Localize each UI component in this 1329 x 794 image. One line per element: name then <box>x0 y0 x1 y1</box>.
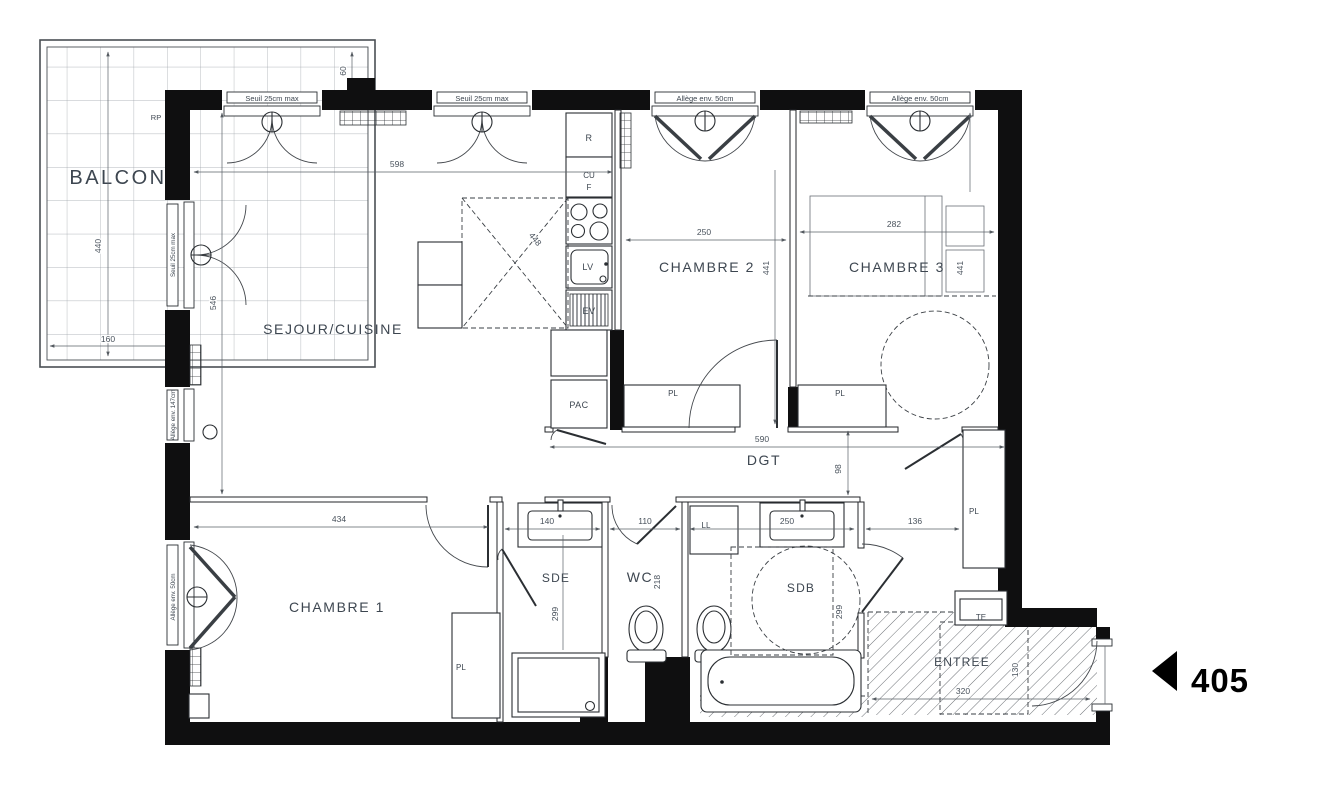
chambre1: CHAMBRE 1 PL <box>289 505 500 718</box>
lv-label: LV <box>582 262 593 272</box>
dishwasher-sink: LV <box>566 246 612 288</box>
radiator <box>340 111 406 125</box>
hob <box>566 198 612 244</box>
bed <box>808 196 996 296</box>
door-ch3 <box>905 434 969 472</box>
window-note-allege-ch2: Allège env. 50cm <box>677 94 734 103</box>
unit-number: 405 <box>1191 662 1249 699</box>
nightstand <box>946 250 984 292</box>
room-label-chambre2: CHAMBRE 2 <box>659 259 755 275</box>
bathtub <box>701 650 861 712</box>
wall-pillar <box>347 78 375 92</box>
nightstand <box>946 206 984 246</box>
dim-entree-w: 320 <box>956 686 970 696</box>
kitchen-island-future: 448 <box>462 198 568 328</box>
dim-wc-h: 218 <box>652 575 662 589</box>
unit-badge: 405 <box>1152 651 1249 699</box>
kitchen: R CU F LV EV 448 <box>418 113 612 428</box>
balcony: BALCON 440 160 60 RP <box>40 40 375 367</box>
turning-circle <box>752 546 860 654</box>
dim-ch3-w: 282 <box>887 219 901 229</box>
dim-sejour-w: 598 <box>390 159 404 169</box>
window-note-allege147: Allège env. 147cm <box>170 390 177 440</box>
window-note-allege-ch3: Allège env. 50cm <box>892 94 949 103</box>
room-label-chambre3: CHAMBRE 3 <box>849 259 945 275</box>
door-sejour-dgt <box>551 430 606 444</box>
radiator <box>620 113 631 168</box>
dim-entree-h: 130 <box>1010 663 1020 677</box>
dim-ch1-w: 434 <box>332 514 346 524</box>
sde-shower <box>512 653 605 717</box>
room-label-balcon: BALCON <box>69 167 166 189</box>
dim-balcony-edge: 60 <box>338 66 348 76</box>
dim-ch2-w: 250 <box>697 227 711 237</box>
cabinet <box>418 242 462 285</box>
room-label-sejour: SEJOUR/CUISINE <box>263 321 403 337</box>
window-sejour-2: Seuil 25cm max <box>434 92 530 163</box>
heat-pump: PAC <box>551 380 607 428</box>
fridge-label: R <box>586 133 593 143</box>
room-label-wc: WC <box>627 569 654 585</box>
room-label-dgt: DGT <box>747 452 781 468</box>
dim-sejour-h: 546 <box>208 296 218 310</box>
window-note-seuil-balcony: Seuil 25cm max <box>170 232 177 277</box>
room-label-entree: ENTREE <box>934 655 990 669</box>
cupboard <box>551 330 607 376</box>
electrical-panel: TE <box>955 591 1007 625</box>
pl-label-ch1: PL <box>456 663 466 672</box>
dim-sdb-h: 299 <box>834 605 844 619</box>
floor-plan-svg: BALCON 440 160 60 RP <box>0 0 1329 794</box>
window-note-seuil-1: Seuil 25cm max <box>245 94 299 103</box>
sink-drainer: EV <box>566 290 612 330</box>
shower-option-outline <box>731 547 833 655</box>
four-label: F <box>587 183 592 192</box>
dim-ch3-h: 441 <box>955 261 965 275</box>
room-label-sde: SDE <box>542 571 570 585</box>
dim-wc-w: 110 <box>638 516 652 526</box>
pl-label-hall: PL <box>969 507 979 516</box>
dim-sdb-w: 250 <box>780 516 794 526</box>
sdb-washbasin <box>760 500 844 547</box>
dim-balcony-width: 160 <box>101 334 115 344</box>
window-chambre1: Allège env. 50cm <box>167 542 237 650</box>
te-label: TE <box>976 613 986 622</box>
window-note-allege-ch1: Allège env. 50cm <box>170 573 177 620</box>
dim-island: 448 <box>527 230 544 248</box>
closet-ch1: PL <box>452 613 500 718</box>
radiator <box>190 648 201 686</box>
socket-symbol <box>203 425 217 439</box>
dim-sde-h: 299 <box>550 607 560 621</box>
floor-plan-405: BALCON 440 160 60 RP <box>0 0 1329 794</box>
door-ch1 <box>426 505 488 567</box>
dim-hall-w: 136 <box>908 516 922 526</box>
radiator <box>190 345 201 385</box>
door-sde <box>498 549 536 606</box>
window-note-seuil-2: Seuil 25cm max <box>455 94 509 103</box>
dim-dgt-w: 98 <box>833 464 843 474</box>
pl-label-ch2: PL <box>668 389 678 398</box>
room-label-chambre1: CHAMBRE 1 <box>289 599 385 615</box>
unit-arrow-icon <box>1152 651 1177 691</box>
cabinet <box>418 285 462 328</box>
closet-hall: PL <box>963 430 1005 568</box>
closet-ch2: PL <box>624 385 740 427</box>
pl-label-ch3: PL <box>835 389 845 398</box>
window-sejour-left: Allège env. 147cm <box>167 389 194 441</box>
dim-balcony-depth: 440 <box>93 239 103 253</box>
chambre2: CHAMBRE 2 PL <box>624 259 777 428</box>
wc-toilet <box>627 606 666 662</box>
wc: WC <box>612 505 676 662</box>
window-chambre3: Allège env. 50cm <box>867 92 973 161</box>
dim-ch2-h: 441 <box>761 261 771 275</box>
pac-label: PAC <box>569 400 588 410</box>
room-label-sdb: SDB <box>787 581 815 595</box>
ev-label: EV <box>582 306 595 316</box>
radiator <box>800 111 852 123</box>
dim-sde-w: 140 <box>540 516 554 526</box>
wall-bottom <box>165 722 1110 745</box>
closet-ch3: PL <box>798 385 886 427</box>
door-sdb <box>862 544 903 612</box>
window-chambre2: Allège env. 50cm <box>652 92 758 161</box>
turning-circle <box>881 311 989 419</box>
sde-washbasin <box>518 500 602 547</box>
rp-label: RP <box>151 113 161 122</box>
dim-dgt-l: 590 <box>755 434 769 444</box>
wall-vent <box>189 694 209 718</box>
